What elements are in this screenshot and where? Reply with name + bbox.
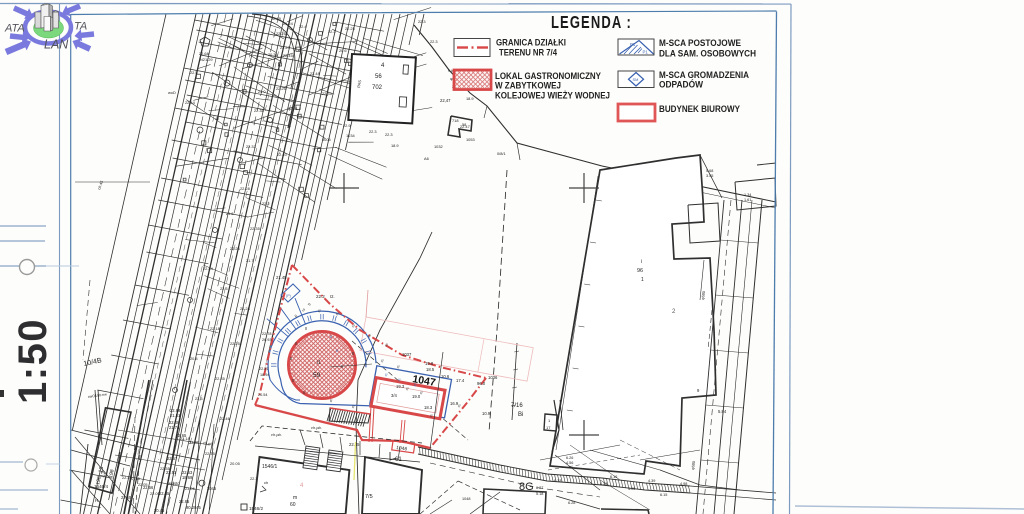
svg-text:17.4: 17.4 xyxy=(456,378,465,383)
svg-text:6.28: 6.28 xyxy=(568,501,575,505)
svg-text:22.5: 22.5 xyxy=(190,70,198,75)
svg-text:17: 17 xyxy=(546,425,551,430)
svg-text:II: II xyxy=(295,341,297,346)
svg-text:Bi: Bi xyxy=(518,412,523,418)
svg-text:3/4: 3/4 xyxy=(391,393,397,398)
svg-text:m: m xyxy=(293,495,297,501)
svg-text:0/8/1: 0/8/1 xyxy=(497,151,506,156)
svg-text:96: 96 xyxy=(637,268,643,274)
svg-text:22.3: 22.3 xyxy=(328,29,336,34)
svg-text:22.57: 22.57 xyxy=(167,456,178,461)
svg-text:II: II xyxy=(336,348,338,353)
svg-text:22.3: 22.3 xyxy=(195,396,203,401)
svg-text:5.18: 5.18 xyxy=(536,492,543,496)
svg-text:22.35: 22.35 xyxy=(160,466,170,471)
svg-text:22.87: 22.87 xyxy=(259,367,269,371)
svg-text:22.31: 22.31 xyxy=(288,106,298,111)
svg-text:22.33: 22.33 xyxy=(246,144,256,149)
svg-text:20.46: 20.46 xyxy=(154,508,165,513)
svg-text:i: i xyxy=(641,259,642,265)
svg-text:II: II xyxy=(330,334,332,339)
svg-text:1:50: 1:50 xyxy=(11,318,55,404)
svg-text:22.78: 22.78 xyxy=(262,332,272,336)
svg-text:DLA SAM. OSOBOWYCH: DLA SAM. OSOBOWYCH xyxy=(659,49,756,60)
svg-text:1036: 1036 xyxy=(488,375,498,380)
svg-text:22.46: 22.46 xyxy=(220,416,230,421)
svg-text:702: 702 xyxy=(372,85,383,91)
svg-text:II: II xyxy=(330,398,333,403)
svg-text:718: 718 xyxy=(452,118,459,123)
svg-text:1546/2: 1546/2 xyxy=(249,506,263,511)
svg-text:1034: 1034 xyxy=(346,133,355,138)
svg-text:5.84: 5.84 xyxy=(718,409,727,414)
svg-text:22.2: 22.2 xyxy=(262,201,270,206)
svg-text:18.5: 18.5 xyxy=(426,367,435,372)
svg-text:4.56: 4.56 xyxy=(566,461,573,465)
svg-text:1048: 1048 xyxy=(462,497,470,501)
svg-text:22.35: 22.35 xyxy=(122,476,132,480)
svg-text:19.8: 19.8 xyxy=(425,361,434,366)
svg-text:19.3: 19.3 xyxy=(396,384,405,389)
svg-text:21.7: 21.7 xyxy=(246,258,254,263)
svg-text:22.35: 22.35 xyxy=(205,451,215,456)
svg-text:21.8: 21.8 xyxy=(226,211,234,216)
svg-text:II: II xyxy=(290,356,292,361)
svg-text:22.2: 22.2 xyxy=(316,294,325,299)
svg-text:96.0: 96.0 xyxy=(477,381,486,386)
svg-text:II: II xyxy=(352,351,354,356)
svg-text:M-SCA POSTOJOWE: M-SCA POSTOJOWE xyxy=(659,38,741,49)
svg-text:21.45: 21.45 xyxy=(276,275,287,280)
svg-text:ODPADÓW: ODPADÓW xyxy=(659,79,703,91)
svg-text:26.93: 26.93 xyxy=(262,338,272,342)
svg-text:18.94: 18.94 xyxy=(260,373,270,377)
svg-text:22.3: 22.3 xyxy=(430,39,438,44)
svg-text:58: 58 xyxy=(462,122,466,127)
svg-text:22.25: 22.25 xyxy=(276,86,286,91)
svg-text:20.6: 20.6 xyxy=(339,48,347,53)
svg-text:ch.pb.: ch.pb. xyxy=(311,425,322,430)
svg-text:22.25: 22.25 xyxy=(276,31,286,36)
svg-text:18.3: 18.3 xyxy=(424,405,433,410)
svg-text:22.85: 22.85 xyxy=(179,499,190,504)
svg-text:21.74: 21.74 xyxy=(169,425,180,430)
svg-text:21.24: 21.24 xyxy=(283,21,294,26)
svg-text:6.15: 6.15 xyxy=(660,493,667,497)
svg-text:21.51: 21.51 xyxy=(170,413,181,418)
svg-text:20.36: 20.36 xyxy=(268,52,278,57)
svg-text:KOLEJOWEJ WIEŻY WODNEJ: KOLEJOWEJ WIEŻY WODNEJ xyxy=(495,91,610,102)
svg-text:22.40: 22.40 xyxy=(277,152,288,157)
svg-text:22.18: 22.18 xyxy=(180,436,190,441)
svg-text:BUDYNEK BIUROWY: BUDYNEK BIUROWY xyxy=(659,104,741,115)
svg-text:22.25: 22.25 xyxy=(345,26,355,31)
svg-text:22.25: 22.25 xyxy=(230,341,240,346)
svg-text:22.05: 22.05 xyxy=(150,491,160,496)
svg-text:1.61: 1.61 xyxy=(744,198,751,202)
svg-text:22.65: 22.65 xyxy=(121,495,132,500)
svg-text:22.3: 22.3 xyxy=(369,129,377,134)
svg-text:7/5: 7/5 xyxy=(365,494,373,500)
svg-text:i1: i1 xyxy=(317,360,321,366)
svg-text:(P): (P) xyxy=(286,294,291,298)
svg-text:90.2045: 90.2045 xyxy=(186,505,202,510)
svg-text:TA: TA xyxy=(74,21,87,33)
svg-text:42: 42 xyxy=(215,116,219,121)
svg-text:7/16: 7/16 xyxy=(511,403,523,409)
svg-text:18.9: 18.9 xyxy=(466,96,474,101)
svg-text:22.44: 22.44 xyxy=(203,266,214,271)
svg-text:8G: 8G xyxy=(519,481,534,493)
svg-text:22.68: 22.68 xyxy=(199,51,209,56)
svg-text:22.55: 22.55 xyxy=(159,491,170,496)
svg-text:6.26: 6.26 xyxy=(566,456,573,460)
svg-text:22.35: 22.35 xyxy=(250,226,260,231)
svg-text:ch: ch xyxy=(264,480,268,485)
svg-text:LEGENDA :: LEGENDA : xyxy=(551,12,632,32)
svg-text:22.23: 22.23 xyxy=(280,45,290,50)
svg-text:3.55: 3.55 xyxy=(706,174,713,178)
svg-text:22.19: 22.19 xyxy=(271,16,281,21)
svg-text:woD: woD xyxy=(168,90,176,95)
svg-text:P1: P1 xyxy=(630,42,636,47)
svg-text:22.05: 22.05 xyxy=(138,483,148,487)
svg-text:18.69: 18.69 xyxy=(182,475,193,480)
svg-text:1037: 1037 xyxy=(402,352,412,357)
svg-text:59: 59 xyxy=(313,372,321,379)
svg-text:56: 56 xyxy=(375,74,382,80)
svg-text:N21.29: N21.29 xyxy=(200,57,213,62)
svg-text:1.34: 1.34 xyxy=(744,193,751,197)
svg-text:H: H xyxy=(95,498,98,503)
svg-text:60: 60 xyxy=(290,502,296,508)
svg-text:22.44: 22.44 xyxy=(185,100,196,105)
svg-text:k: k xyxy=(355,38,357,43)
svg-text:P1: P1 xyxy=(643,50,649,55)
svg-text:20.54: 20.54 xyxy=(258,393,268,397)
svg-text:22.3: 22.3 xyxy=(418,19,426,24)
svg-text:2045: 2045 xyxy=(207,486,217,491)
svg-text:22.28: 22.28 xyxy=(240,186,250,191)
svg-text:SM: SM xyxy=(633,77,639,82)
svg-text:22.48: 22.48 xyxy=(310,71,320,76)
svg-text:6.16: 6.16 xyxy=(610,475,617,479)
svg-text:22.18: 22.18 xyxy=(210,326,220,331)
svg-text:10.9: 10.9 xyxy=(482,411,491,416)
svg-text:II: II xyxy=(341,364,343,369)
svg-text:LAN: LAN xyxy=(44,38,69,52)
svg-text:5005: 5005 xyxy=(322,137,331,142)
svg-text:20.8: 20.8 xyxy=(190,356,198,361)
svg-text:I2.: I2. xyxy=(330,294,335,299)
svg-text:22.4: 22.4 xyxy=(299,24,307,29)
svg-text:18.9: 18.9 xyxy=(391,143,399,148)
svg-text:1: 1 xyxy=(641,277,644,283)
svg-text:22.35: 22.35 xyxy=(322,91,332,96)
svg-text:4.39: 4.39 xyxy=(648,479,655,483)
svg-text:II: II xyxy=(303,390,306,395)
svg-text:1546/1: 1546/1 xyxy=(262,464,278,470)
svg-text:22.3: 22.3 xyxy=(220,286,228,291)
svg-text:II: II xyxy=(292,378,294,383)
svg-text:1053: 1053 xyxy=(466,137,475,142)
svg-text:22.28: 22.28 xyxy=(240,306,250,311)
svg-text:24.0: 24.0 xyxy=(258,89,266,94)
svg-text:22.45: 22.45 xyxy=(349,442,360,447)
svg-text:ch.pb.: ch.pb. xyxy=(271,432,282,437)
svg-text:ATA: ATA xyxy=(4,23,25,35)
svg-text:22.26: 22.26 xyxy=(230,246,240,251)
svg-text:9 k: 9 k xyxy=(448,68,453,73)
svg-text:23.06: 23.06 xyxy=(185,486,195,491)
svg-text:1032: 1032 xyxy=(434,144,443,149)
svg-text:10.6: 10.6 xyxy=(441,374,450,379)
svg-text:22.3: 22.3 xyxy=(385,132,393,137)
svg-text:22.38: 22.38 xyxy=(254,108,264,113)
svg-text:22.35: 22.35 xyxy=(215,376,225,381)
svg-text:II: II xyxy=(305,326,307,331)
svg-text:20.05: 20.05 xyxy=(230,461,240,466)
svg-text:5.68: 5.68 xyxy=(706,169,713,173)
svg-text:22.45: 22.45 xyxy=(283,53,293,58)
svg-text:TERENU NR 7/4: TERENU NR 7/4 xyxy=(499,48,558,59)
svg-text:22.9: 22.9 xyxy=(343,123,351,128)
svg-text:22,47: 22,47 xyxy=(440,98,451,103)
svg-text:13: 13 xyxy=(98,466,105,473)
svg-text:A6: A6 xyxy=(424,156,429,161)
svg-text:1546/4: 1546/4 xyxy=(94,484,108,489)
